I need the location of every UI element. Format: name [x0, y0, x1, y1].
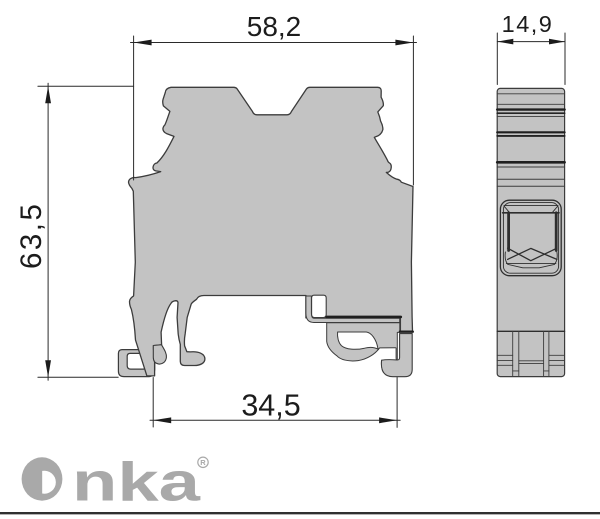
svg-text:14,9: 14,9: [502, 11, 554, 37]
svg-text:nka: nka: [72, 451, 201, 513]
svg-text:R: R: [200, 458, 206, 467]
svg-text:34,5: 34,5: [241, 388, 300, 422]
svg-text:63,5: 63,5: [15, 202, 48, 269]
svg-text:58,2: 58,2: [247, 11, 302, 42]
